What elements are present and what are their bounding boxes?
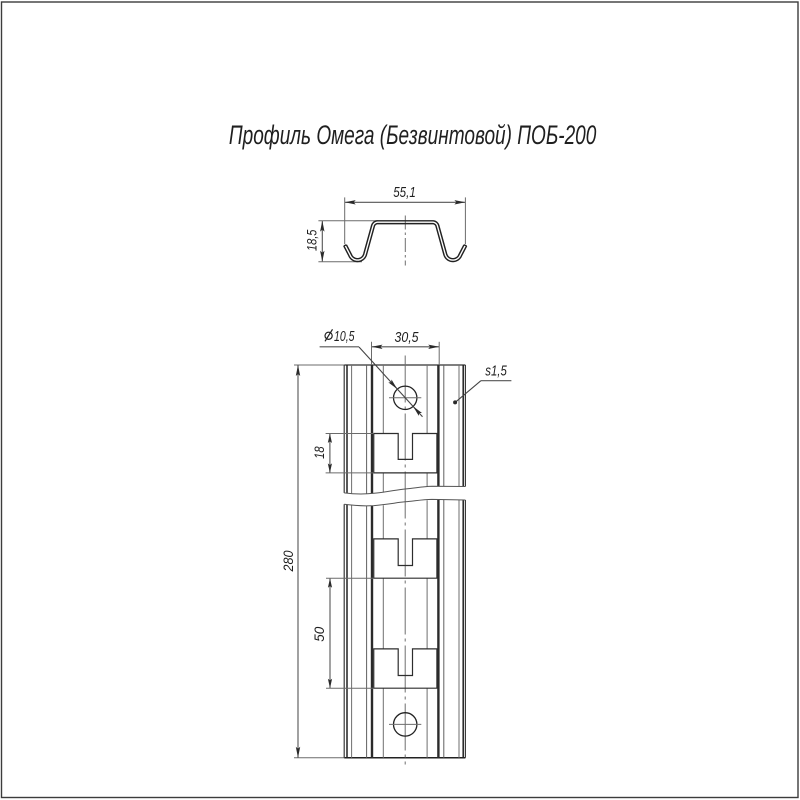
svg-text:30,5: 30,5 — [395, 330, 420, 346]
svg-text:s1,5: s1,5 — [485, 363, 507, 379]
svg-text:18,5: 18,5 — [303, 229, 319, 251]
svg-text:50: 50 — [311, 626, 327, 641]
svg-text:Профиль Омега (Безвинтовой) ПО: Профиль Омега (Безвинтовой) ПОБ-200 — [229, 120, 597, 150]
svg-text:55,1: 55,1 — [393, 185, 416, 201]
svg-text:18: 18 — [311, 446, 327, 459]
svg-text:10,5: 10,5 — [334, 329, 355, 345]
svg-text:280: 280 — [280, 550, 296, 572]
